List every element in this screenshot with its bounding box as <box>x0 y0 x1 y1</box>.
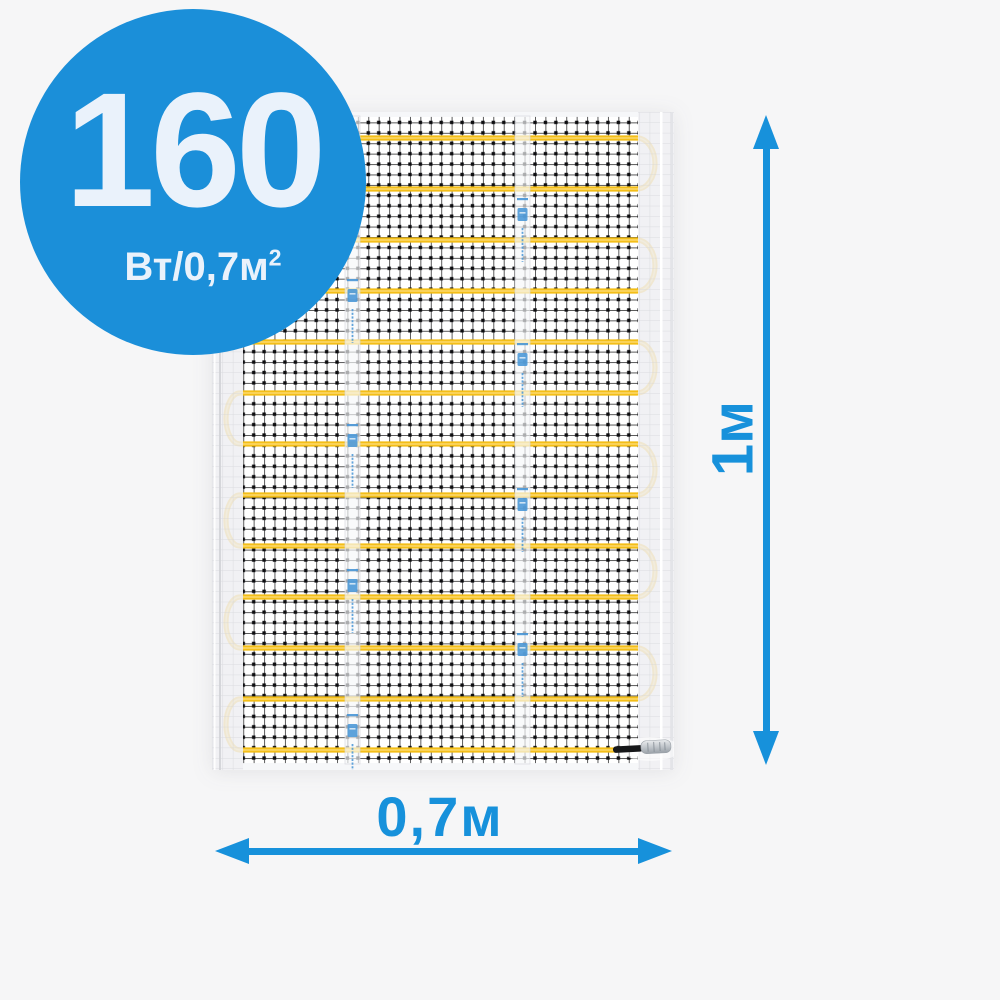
height-dimension-label: 1м <box>700 319 767 559</box>
tape-logo-icon <box>518 208 528 221</box>
tape-logo-icon <box>348 434 358 447</box>
fixing-tape <box>515 116 530 764</box>
power-badge: 160 Вт/0,7м2 <box>20 9 366 355</box>
mat-bottom-edge <box>243 763 638 770</box>
tape-logo-icon <box>518 498 528 511</box>
width-dimension-label: 0,7м <box>290 784 590 849</box>
tape-logo-icon <box>348 579 358 592</box>
power-unit-exponent: 2 <box>269 245 282 271</box>
product-image: 160 Вт/0,7м2 1м 0,7м <box>0 0 1000 1000</box>
tape-logo-icon <box>518 353 528 366</box>
power-value: 160 <box>65 68 322 231</box>
power-unit: Вт/0,7м2 <box>124 245 281 290</box>
tape-logo-icon <box>518 643 528 656</box>
power-unit-base: Вт/0,7м <box>124 245 268 289</box>
tape-logo-icon <box>348 724 358 737</box>
mat-right-selvage <box>638 112 674 770</box>
arrow-down-icon <box>753 731 779 765</box>
end-sleeve-icon <box>641 739 672 754</box>
tape-logo-icon <box>348 289 358 302</box>
arrow-right-icon <box>638 838 672 864</box>
